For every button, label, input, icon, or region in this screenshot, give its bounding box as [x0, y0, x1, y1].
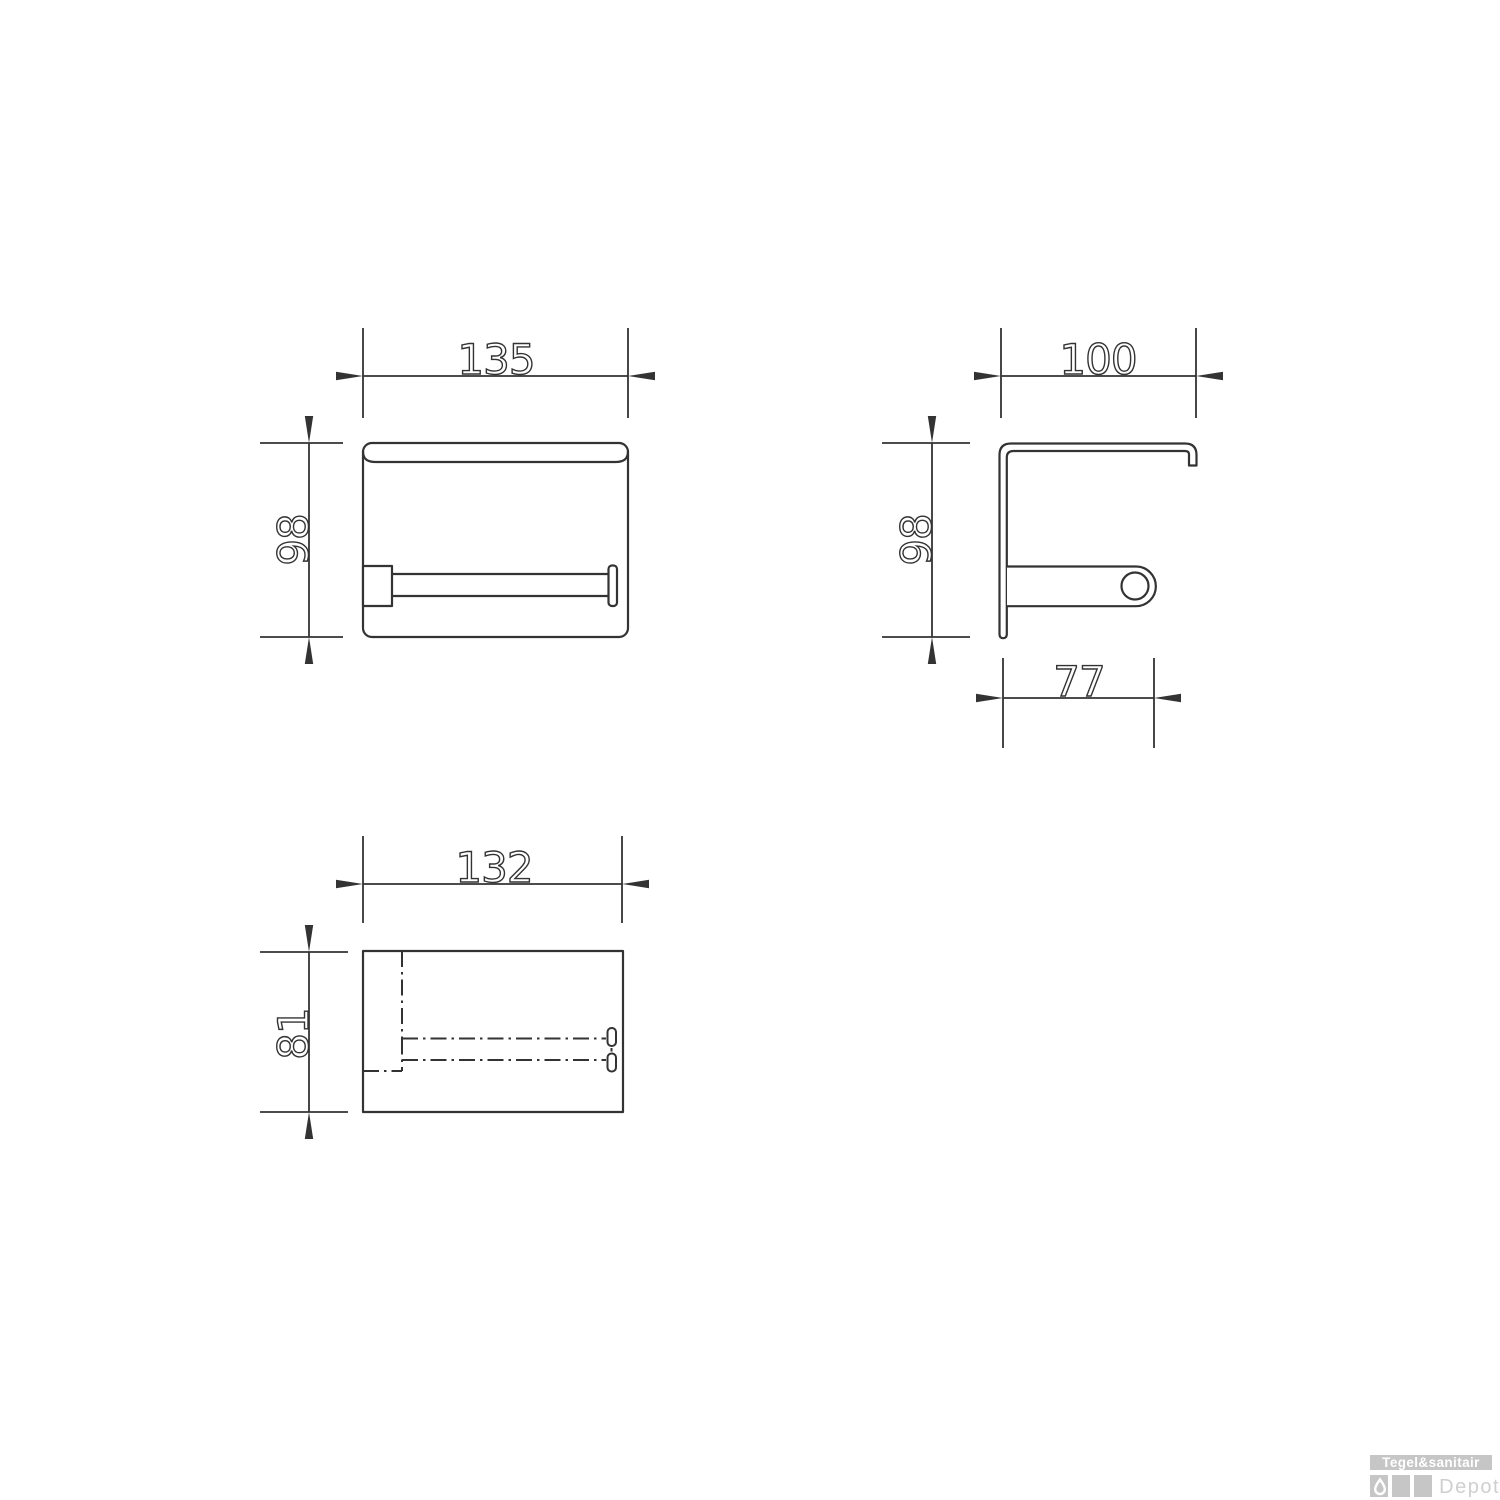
- dimension-label: 98: [269, 514, 318, 565]
- roller-mount-block: [363, 566, 392, 606]
- roller-side: [1007, 567, 1156, 607]
- dimension-label: 98: [892, 514, 941, 565]
- holder-body-outline: [363, 443, 628, 637]
- dimension-front-width: 135: [363, 328, 628, 418]
- logo-depot-text: Depot: [1439, 1477, 1500, 1497]
- logo-square-drop: [1370, 1475, 1388, 1497]
- dimension-label: 77: [1053, 657, 1104, 706]
- brand-logo: Tegel&sanitair Depot: [1370, 1455, 1500, 1497]
- dimension-label: 135: [457, 335, 534, 384]
- dimension-roller-depth: 77: [1003, 657, 1154, 748]
- side-view: 100 98 77: [882, 328, 1197, 748]
- logo-row: Depot: [1370, 1475, 1500, 1497]
- water-drop-icon: [1370, 1475, 1390, 1497]
- top-view: 132 81: [260, 836, 623, 1112]
- dimension-top-depth: 81: [260, 952, 348, 1112]
- dimension-side-width: 100: [1001, 328, 1196, 418]
- logo-brand-text: Tegel&sanitair: [1382, 1455, 1480, 1470]
- front-view: 135 98: [260, 328, 628, 637]
- dimension-front-height: 98: [260, 443, 343, 637]
- technical-drawing: 135 98 100: [0, 0, 1500, 1500]
- dimension-label: 81: [269, 1008, 318, 1059]
- roller-end-plate: [609, 566, 618, 607]
- drawing-canvas: 135 98 100: [0, 0, 1500, 1500]
- dimension-label: 132: [455, 843, 532, 892]
- dimension-label: 100: [1059, 335, 1136, 384]
- dimension-top-width: 132: [363, 836, 622, 923]
- logo-square: [1392, 1475, 1410, 1497]
- logo-band: Tegel&sanitair: [1370, 1455, 1492, 1470]
- dimension-side-height: 98: [882, 443, 970, 637]
- logo-square: [1414, 1475, 1432, 1497]
- bracket-profile: [1000, 444, 1197, 639]
